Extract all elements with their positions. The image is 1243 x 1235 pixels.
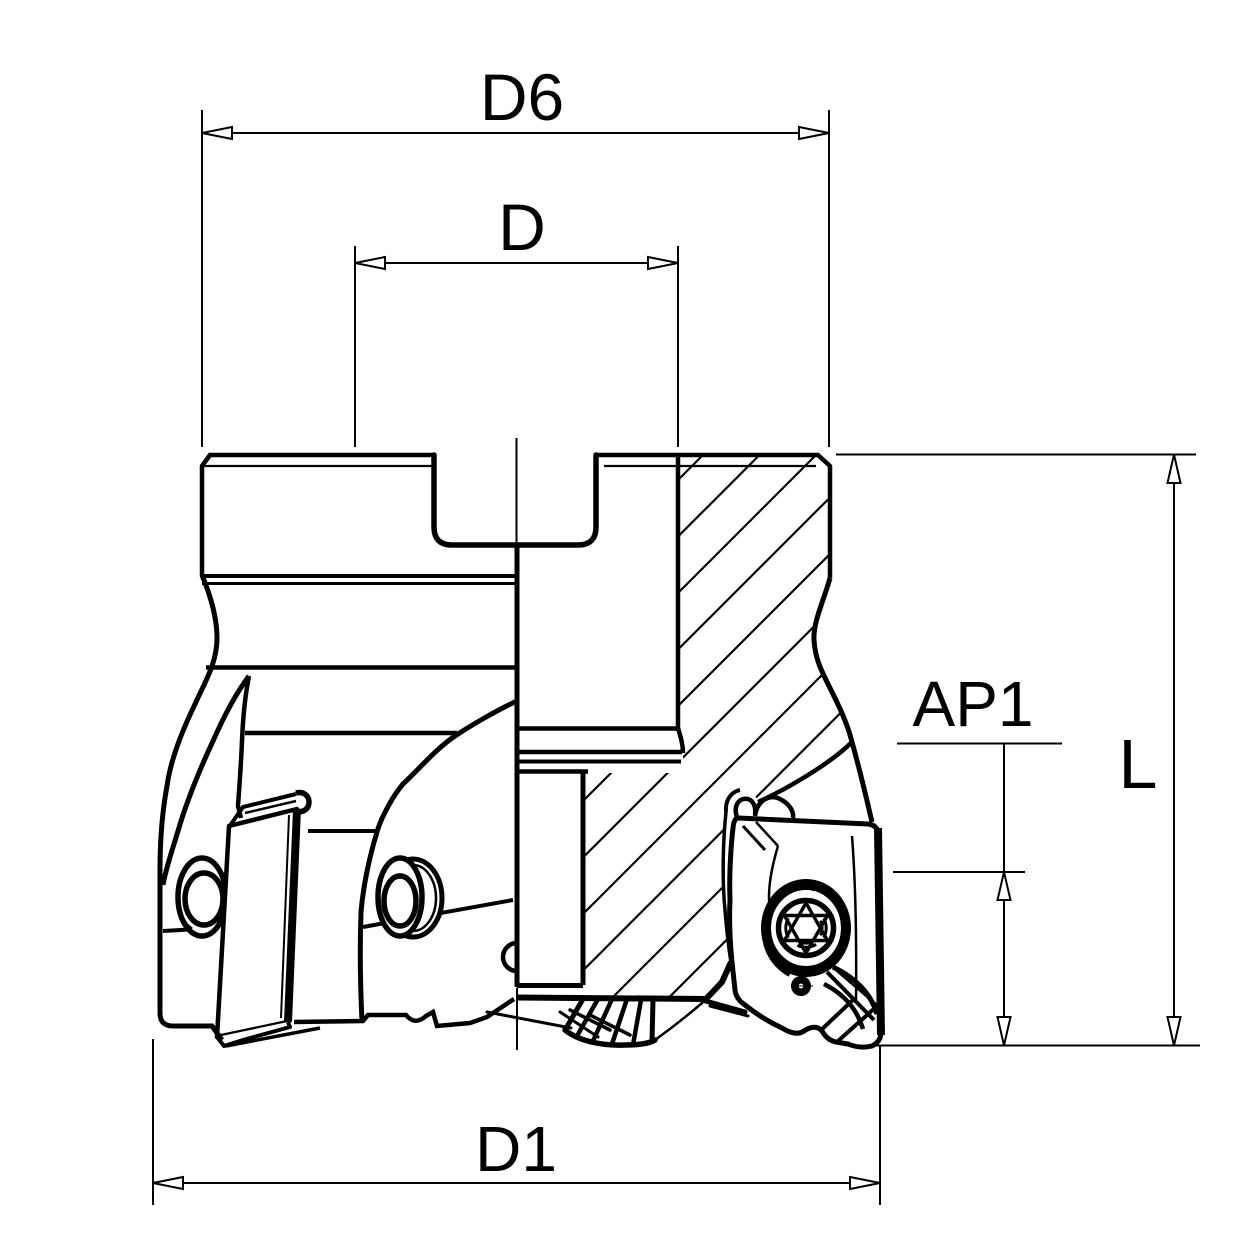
svg-text:D: D [498, 190, 546, 264]
svg-text:D1: D1 [475, 1113, 557, 1185]
svg-text:AP1: AP1 [913, 668, 1034, 740]
svg-text:D6: D6 [480, 60, 564, 134]
svg-text:L: L [1119, 725, 1158, 803]
